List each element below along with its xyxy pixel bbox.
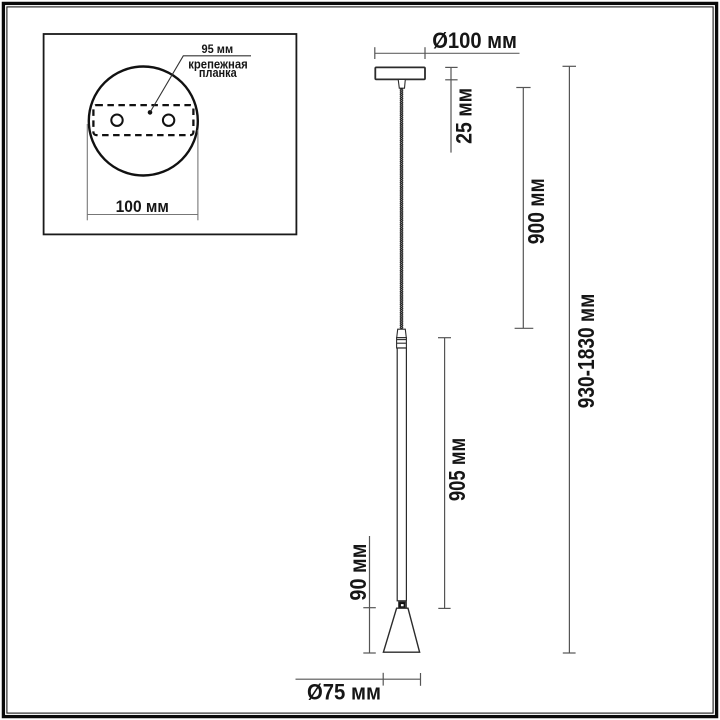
svg-text:900 мм: 900 мм [523, 178, 549, 244]
svg-text:Ø75 мм: Ø75 мм [307, 679, 381, 704]
svg-text:95 мм: 95 мм [202, 44, 234, 56]
svg-text:930-1830 мм: 930-1830 мм [573, 294, 599, 409]
svg-text:планка: планка [199, 66, 238, 80]
svg-text:100 мм: 100 мм [116, 198, 169, 216]
svg-text:Ø100 мм: Ø100 мм [432, 28, 517, 53]
svg-text:90 мм: 90 мм [345, 544, 371, 601]
svg-text:25 мм: 25 мм [451, 88, 476, 144]
svg-text:905 мм: 905 мм [444, 438, 470, 501]
